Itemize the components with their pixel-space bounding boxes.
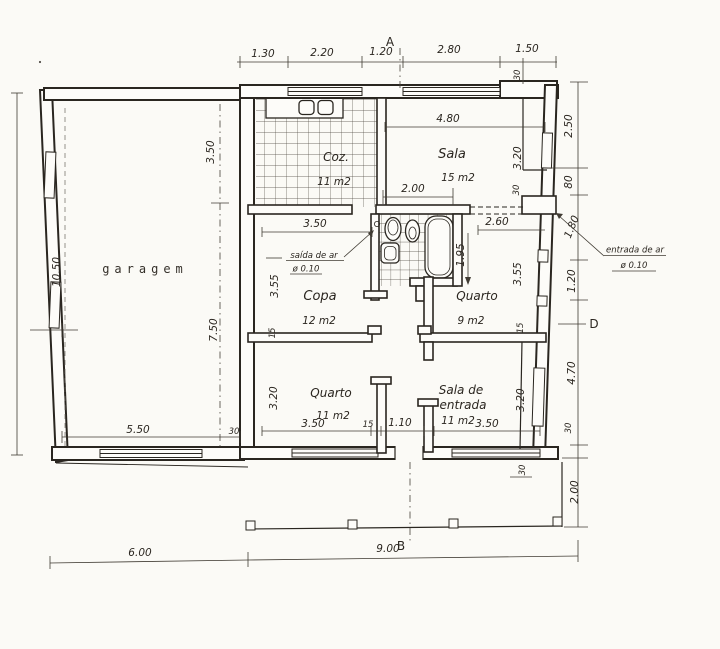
wall-hall-salaentrada-bottom bbox=[424, 402, 433, 452]
garage-window bbox=[49, 282, 61, 328]
wall-mid2-left bbox=[248, 333, 372, 342]
dim-right-1: 2.50 bbox=[563, 114, 575, 138]
dim-copa-355: 3.55 bbox=[269, 274, 281, 298]
dim-sala-200: 2.00 bbox=[401, 183, 425, 195]
scanned-floor-plan-page: A B D 1.30 2.20 1.20 2.80 1.50 30 2.50 8… bbox=[0, 0, 720, 649]
section-marker-d: D bbox=[589, 317, 598, 331]
room-label-sala-entrada-2: entrada bbox=[440, 398, 487, 412]
annotation-entrada-dia: ø 0.10 bbox=[620, 261, 648, 271]
garage-top-wall bbox=[44, 88, 244, 100]
bathtub-icon bbox=[425, 216, 453, 278]
dim-quarto11-wall: 15 bbox=[363, 420, 374, 430]
room-area-copa: 12 m2 bbox=[302, 315, 336, 327]
wall-quarto11-hall bbox=[377, 379, 386, 453]
dim-right-6: 30 bbox=[564, 423, 574, 434]
door-stub bbox=[418, 399, 438, 406]
sala-entrada-window bbox=[532, 368, 545, 426]
dim-sala-entrada-320: 3.20 bbox=[515, 388, 527, 412]
wall-mid-center bbox=[376, 205, 470, 214]
dim-sala-entrada-350: 3.50 bbox=[475, 418, 499, 430]
porch-column bbox=[348, 520, 357, 529]
door-stub bbox=[368, 326, 381, 334]
wall-copa-bath bbox=[371, 214, 379, 300]
house-left-wall bbox=[240, 85, 254, 459]
dim-quarto9-260: 2.60 bbox=[485, 216, 509, 228]
dim-sala-320: 3.20 bbox=[512, 146, 524, 170]
room-area-quarto9: 9 m2 bbox=[458, 315, 485, 327]
dim-sala-480: 4.80 bbox=[436, 113, 460, 125]
dim-top-4: 2.80 bbox=[437, 44, 461, 56]
porch-column bbox=[246, 521, 255, 530]
ink-speck bbox=[39, 61, 41, 63]
wall-mid-left bbox=[248, 205, 352, 214]
dim-right-7: 2.00 bbox=[569, 480, 581, 504]
dim-copa-wall: 15 bbox=[268, 328, 278, 339]
vent-opening bbox=[537, 296, 547, 306]
sink-basin-left bbox=[299, 101, 314, 115]
room-area-sala: 15 m2 bbox=[441, 172, 475, 184]
room-label-quarto11: Quarto bbox=[310, 386, 351, 400]
door-stub bbox=[364, 291, 387, 298]
dim-right-5: 4.70 bbox=[566, 361, 578, 385]
room-label-copa: Copa bbox=[303, 289, 336, 304]
dim-bottom-1: 6.00 bbox=[128, 547, 152, 559]
kitchen-sink-counter bbox=[266, 97, 343, 118]
room-area-sala-entrada: 11 m2 bbox=[441, 415, 475, 427]
dim-porch-wall: 30 bbox=[518, 465, 528, 476]
annotation-entrada-de-ar: entrada de ar bbox=[606, 246, 664, 256]
door-stub bbox=[371, 377, 391, 384]
dim-quarto9-wall: 15 bbox=[516, 323, 526, 334]
dim-bath-195: 1.95 bbox=[455, 243, 467, 267]
wall-mid2-right bbox=[420, 333, 546, 342]
porch-column bbox=[553, 517, 562, 526]
dim-garage-550: 5.50 bbox=[126, 424, 150, 436]
wall-hall-salaentrada-top bbox=[424, 342, 433, 360]
room-label-quarto9: Quarto bbox=[456, 289, 497, 303]
dim-top-3: 1.20 bbox=[369, 46, 393, 58]
sala-right-window bbox=[541, 133, 552, 168]
room-label-sala-entrada-1: Sala de bbox=[439, 383, 483, 397]
garage-window bbox=[44, 152, 56, 198]
dim-top-wall: 30 bbox=[513, 70, 523, 81]
dim-garage-750: 7.50 bbox=[208, 318, 220, 342]
annotation-saida-de-ar: saída de ar bbox=[290, 251, 338, 261]
dim-garage-350: 3.50 bbox=[205, 140, 217, 164]
dim-hall-110: 1.10 bbox=[388, 417, 412, 429]
dim-garage-wall: 30 bbox=[229, 427, 240, 437]
porch-column bbox=[449, 519, 458, 528]
room-label-garagem: garagem bbox=[102, 262, 188, 276]
dim-top-1: 1.30 bbox=[251, 48, 275, 60]
dim-copa-350: 3.50 bbox=[303, 218, 327, 230]
room-label-coz: Coz. bbox=[323, 150, 349, 164]
dim-left-10-50: 10.50 bbox=[51, 257, 63, 287]
dim-sala-wall: 30 bbox=[512, 185, 522, 196]
room-area-coz: 11 m2 bbox=[317, 176, 351, 188]
dim-top-2: 2.20 bbox=[310, 47, 334, 59]
dim-top-5: 1.50 bbox=[515, 43, 539, 55]
room-label-sala: Sala bbox=[438, 147, 466, 162]
vent-opening bbox=[538, 250, 548, 262]
dim-right-4: 1.20 bbox=[566, 269, 578, 293]
dim-right-2: 80 bbox=[563, 175, 575, 189]
toilet-icon bbox=[385, 218, 401, 241]
front-door-opening bbox=[395, 446, 423, 461]
dim-quarto9-355: 3.55 bbox=[512, 262, 524, 286]
dim-quarto11-350: 3.50 bbox=[301, 418, 325, 430]
wall-coz-sala bbox=[377, 98, 386, 208]
dim-quarto11-320: 3.20 bbox=[268, 386, 280, 410]
door-stub bbox=[418, 326, 431, 334]
annotation-saida-dia: ø 0.10 bbox=[292, 265, 320, 275]
floorplan-drawing: A B D 1.30 2.20 1.20 2.80 1.50 30 2.50 8… bbox=[0, 0, 720, 649]
sink-basin-right bbox=[318, 101, 333, 115]
right-wall-pier bbox=[522, 196, 556, 214]
dim-bottom-2: 9.00 bbox=[376, 543, 400, 555]
